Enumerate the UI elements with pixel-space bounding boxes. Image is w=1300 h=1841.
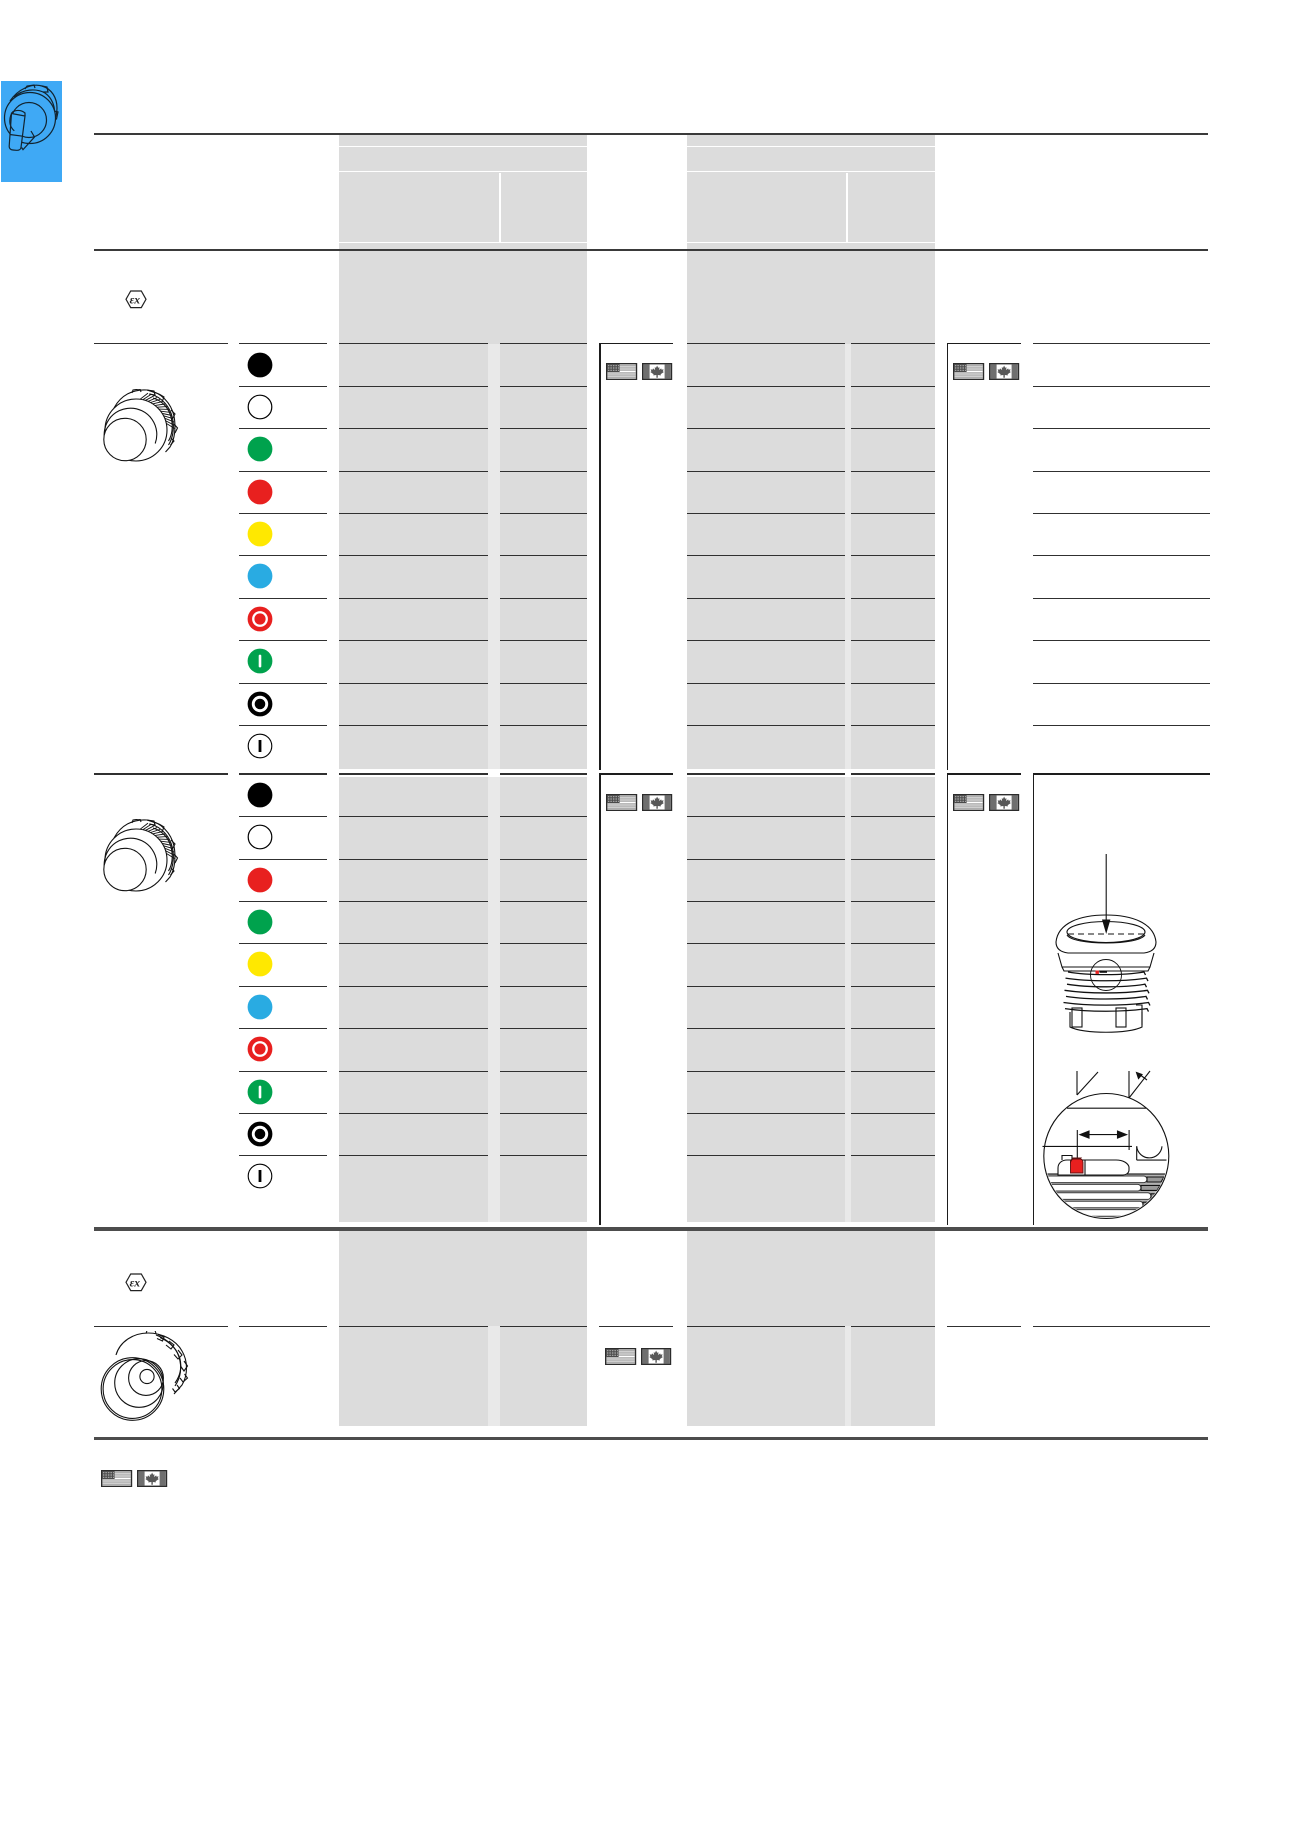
svg-text:εx: εx [129, 1277, 140, 1289]
svg-text:εx: εx [129, 294, 140, 306]
